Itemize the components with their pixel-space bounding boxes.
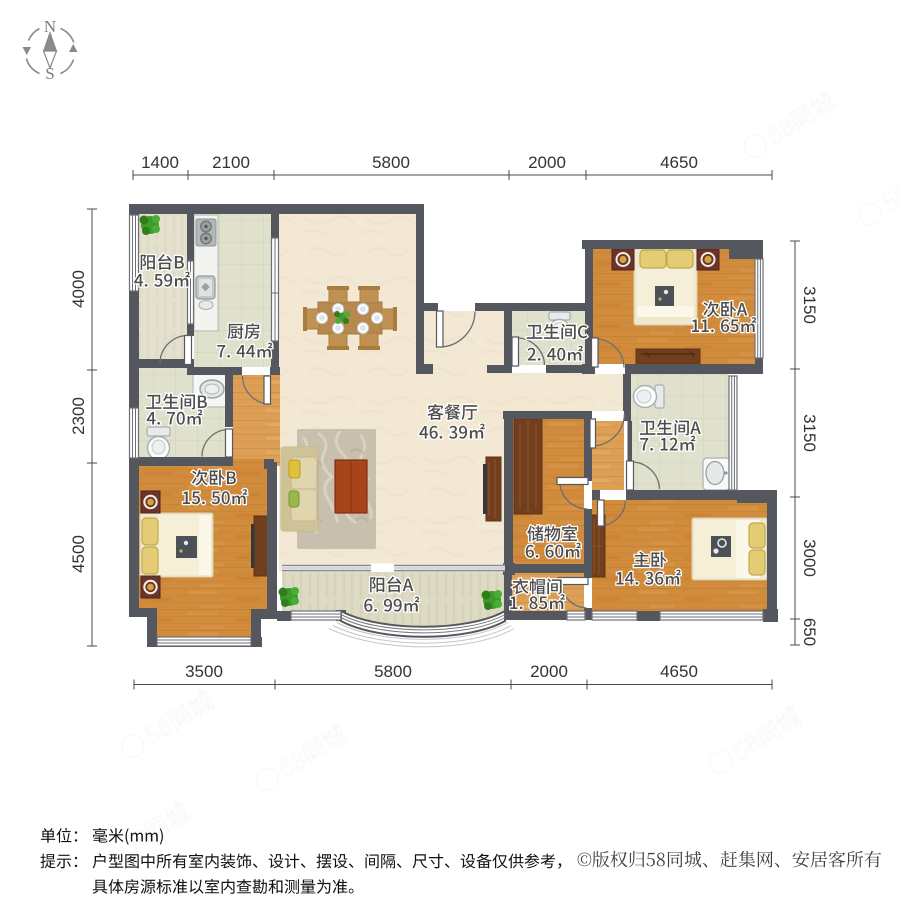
svg-text:5800: 5800	[372, 153, 410, 172]
svg-text:650: 650	[800, 618, 819, 646]
svg-text:N: N	[44, 17, 56, 36]
svg-text:4650: 4650	[660, 662, 698, 681]
svg-text:4650: 4650	[660, 153, 698, 172]
svg-text:5800: 5800	[374, 662, 412, 681]
svg-text:2100: 2100	[212, 153, 250, 172]
svg-text:3150: 3150	[800, 286, 819, 324]
svg-text:2000: 2000	[528, 153, 566, 172]
svg-text:4000: 4000	[69, 270, 88, 308]
svg-text:3150: 3150	[800, 414, 819, 452]
svg-text:1400: 1400	[141, 153, 179, 172]
svg-text:2300: 2300	[69, 397, 88, 435]
svg-text:S: S	[45, 64, 54, 83]
svg-text:3000: 3000	[800, 539, 819, 577]
svg-text:3500: 3500	[185, 662, 223, 681]
svg-text:2000: 2000	[530, 662, 568, 681]
svg-text:4500: 4500	[69, 535, 88, 573]
